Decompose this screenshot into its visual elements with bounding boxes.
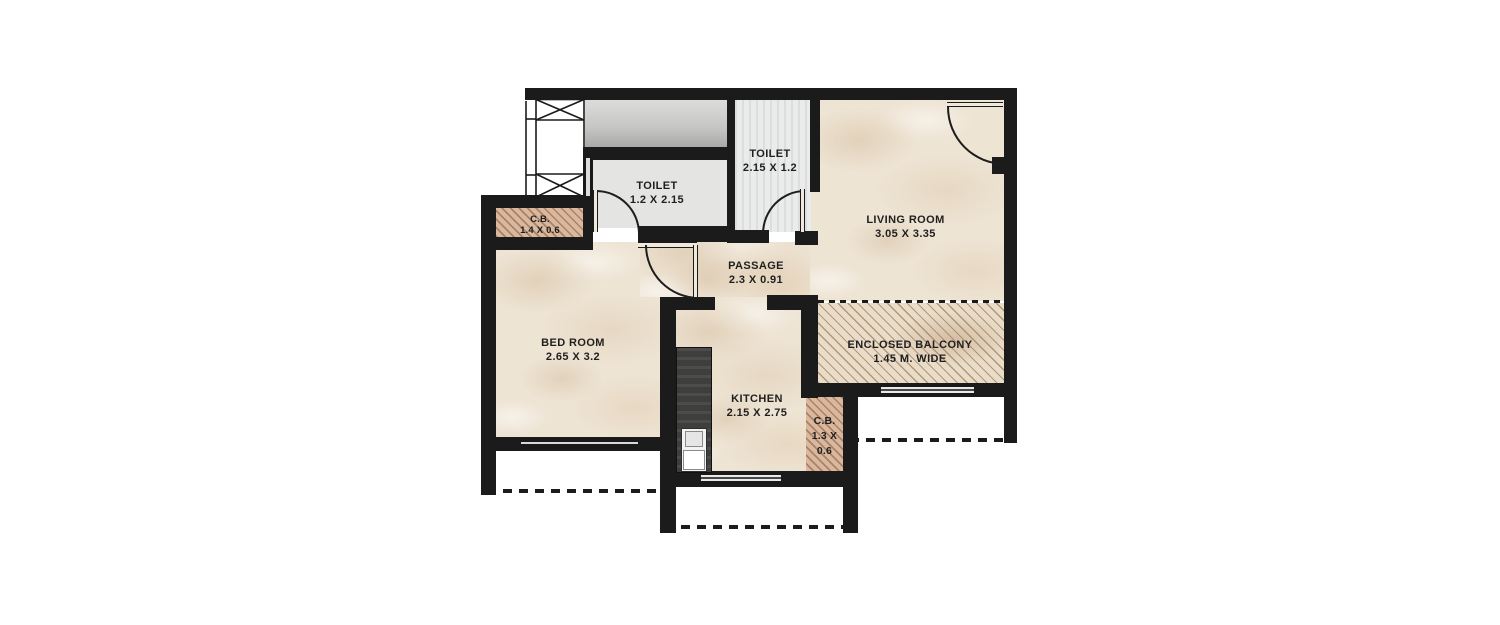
balcony-open-area-dashed-line — [850, 438, 1010, 442]
room-name: KITCHEN — [692, 392, 822, 406]
lift-shaft-icon — [524, 98, 586, 199]
wall-toilet1-bottom — [638, 226, 735, 242]
wall-bedroom-top — [481, 237, 593, 250]
bedroom-door-leaf — [693, 245, 698, 297]
wall-toilet1-top — [583, 147, 733, 160]
bed-room-label: BED ROOM 2.65 X 3.2 — [498, 336, 648, 364]
room-dims: 1.45 M. WIDE — [828, 352, 992, 366]
room-dims: 2.3 X 0.91 — [700, 273, 812, 287]
toilet-1-label: TOILET 1.2 X 2.15 — [591, 179, 723, 207]
wall-bedroom-kitchen — [660, 297, 676, 487]
kitchen-window-icon — [701, 473, 781, 484]
room-name: PASSAGE — [700, 259, 812, 273]
wall-passage-right — [767, 295, 813, 310]
sink-basin-icon — [683, 450, 705, 470]
toilet2-door-leaf — [800, 189, 805, 232]
room-dims: 1.2 X 2.15 — [591, 193, 723, 207]
room-dims: 2.15 X 1.2 — [729, 161, 811, 175]
living-room-label: LIVING ROOM 3.05 X 3.35 — [828, 213, 983, 241]
bedroom-window-icon — [521, 438, 638, 449]
wall-right-mid — [843, 385, 858, 533]
room-dims: 1.3 X — [805, 429, 844, 444]
stove-icon — [685, 431, 703, 447]
room-name: TOILET — [729, 147, 811, 161]
room-dims: 2.15 X 2.75 — [692, 406, 822, 420]
room-dims: 2.65 X 3.2 — [498, 350, 648, 364]
bedroom-open-area-dashed-line — [487, 489, 665, 493]
room-dims: 3.05 X 3.35 — [828, 227, 983, 241]
toilet-2-label: TOILET 2.15 X 1.2 — [729, 147, 811, 175]
wall-living-left-upper — [810, 97, 820, 192]
cb-right-label: C.B. 1.3 X 0.6 — [805, 414, 844, 459]
wall-top — [525, 88, 1017, 100]
wall-kitchen-lower-left — [660, 487, 676, 533]
kitchen-open-area-dashed-line — [665, 525, 848, 529]
room-name: ENCLOSED BALCONY — [828, 338, 992, 352]
kitchen-label: KITCHEN 2.15 X 2.75 — [692, 392, 822, 420]
room-name: TOILET — [591, 179, 723, 193]
passage-label: PASSAGE 2.3 X 0.91 — [700, 259, 812, 287]
enclosed-balcony-label: ENCLOSED BALCONY 1.45 M. WIDE — [828, 338, 992, 366]
lobby-floor — [585, 100, 727, 150]
room-name: LIVING ROOM — [828, 213, 983, 227]
cb-top-label: C.B. 1.4 X 0.6 — [496, 214, 584, 236]
floor-plan-canvas: TOILET 1.2 X 2.15 TOILET 2.15 X 1.2 LIVI… — [0, 0, 1500, 625]
room-name: BED ROOM — [498, 336, 648, 350]
room-dims: 1.4 X 0.6 — [496, 225, 584, 236]
balcony-boundary-dashed-line — [818, 300, 1004, 303]
room-name: C.B. — [805, 414, 844, 429]
room-name: C.B. — [496, 214, 584, 225]
room-dims: 0.6 — [805, 444, 844, 459]
balcony-window-icon — [881, 385, 974, 395]
